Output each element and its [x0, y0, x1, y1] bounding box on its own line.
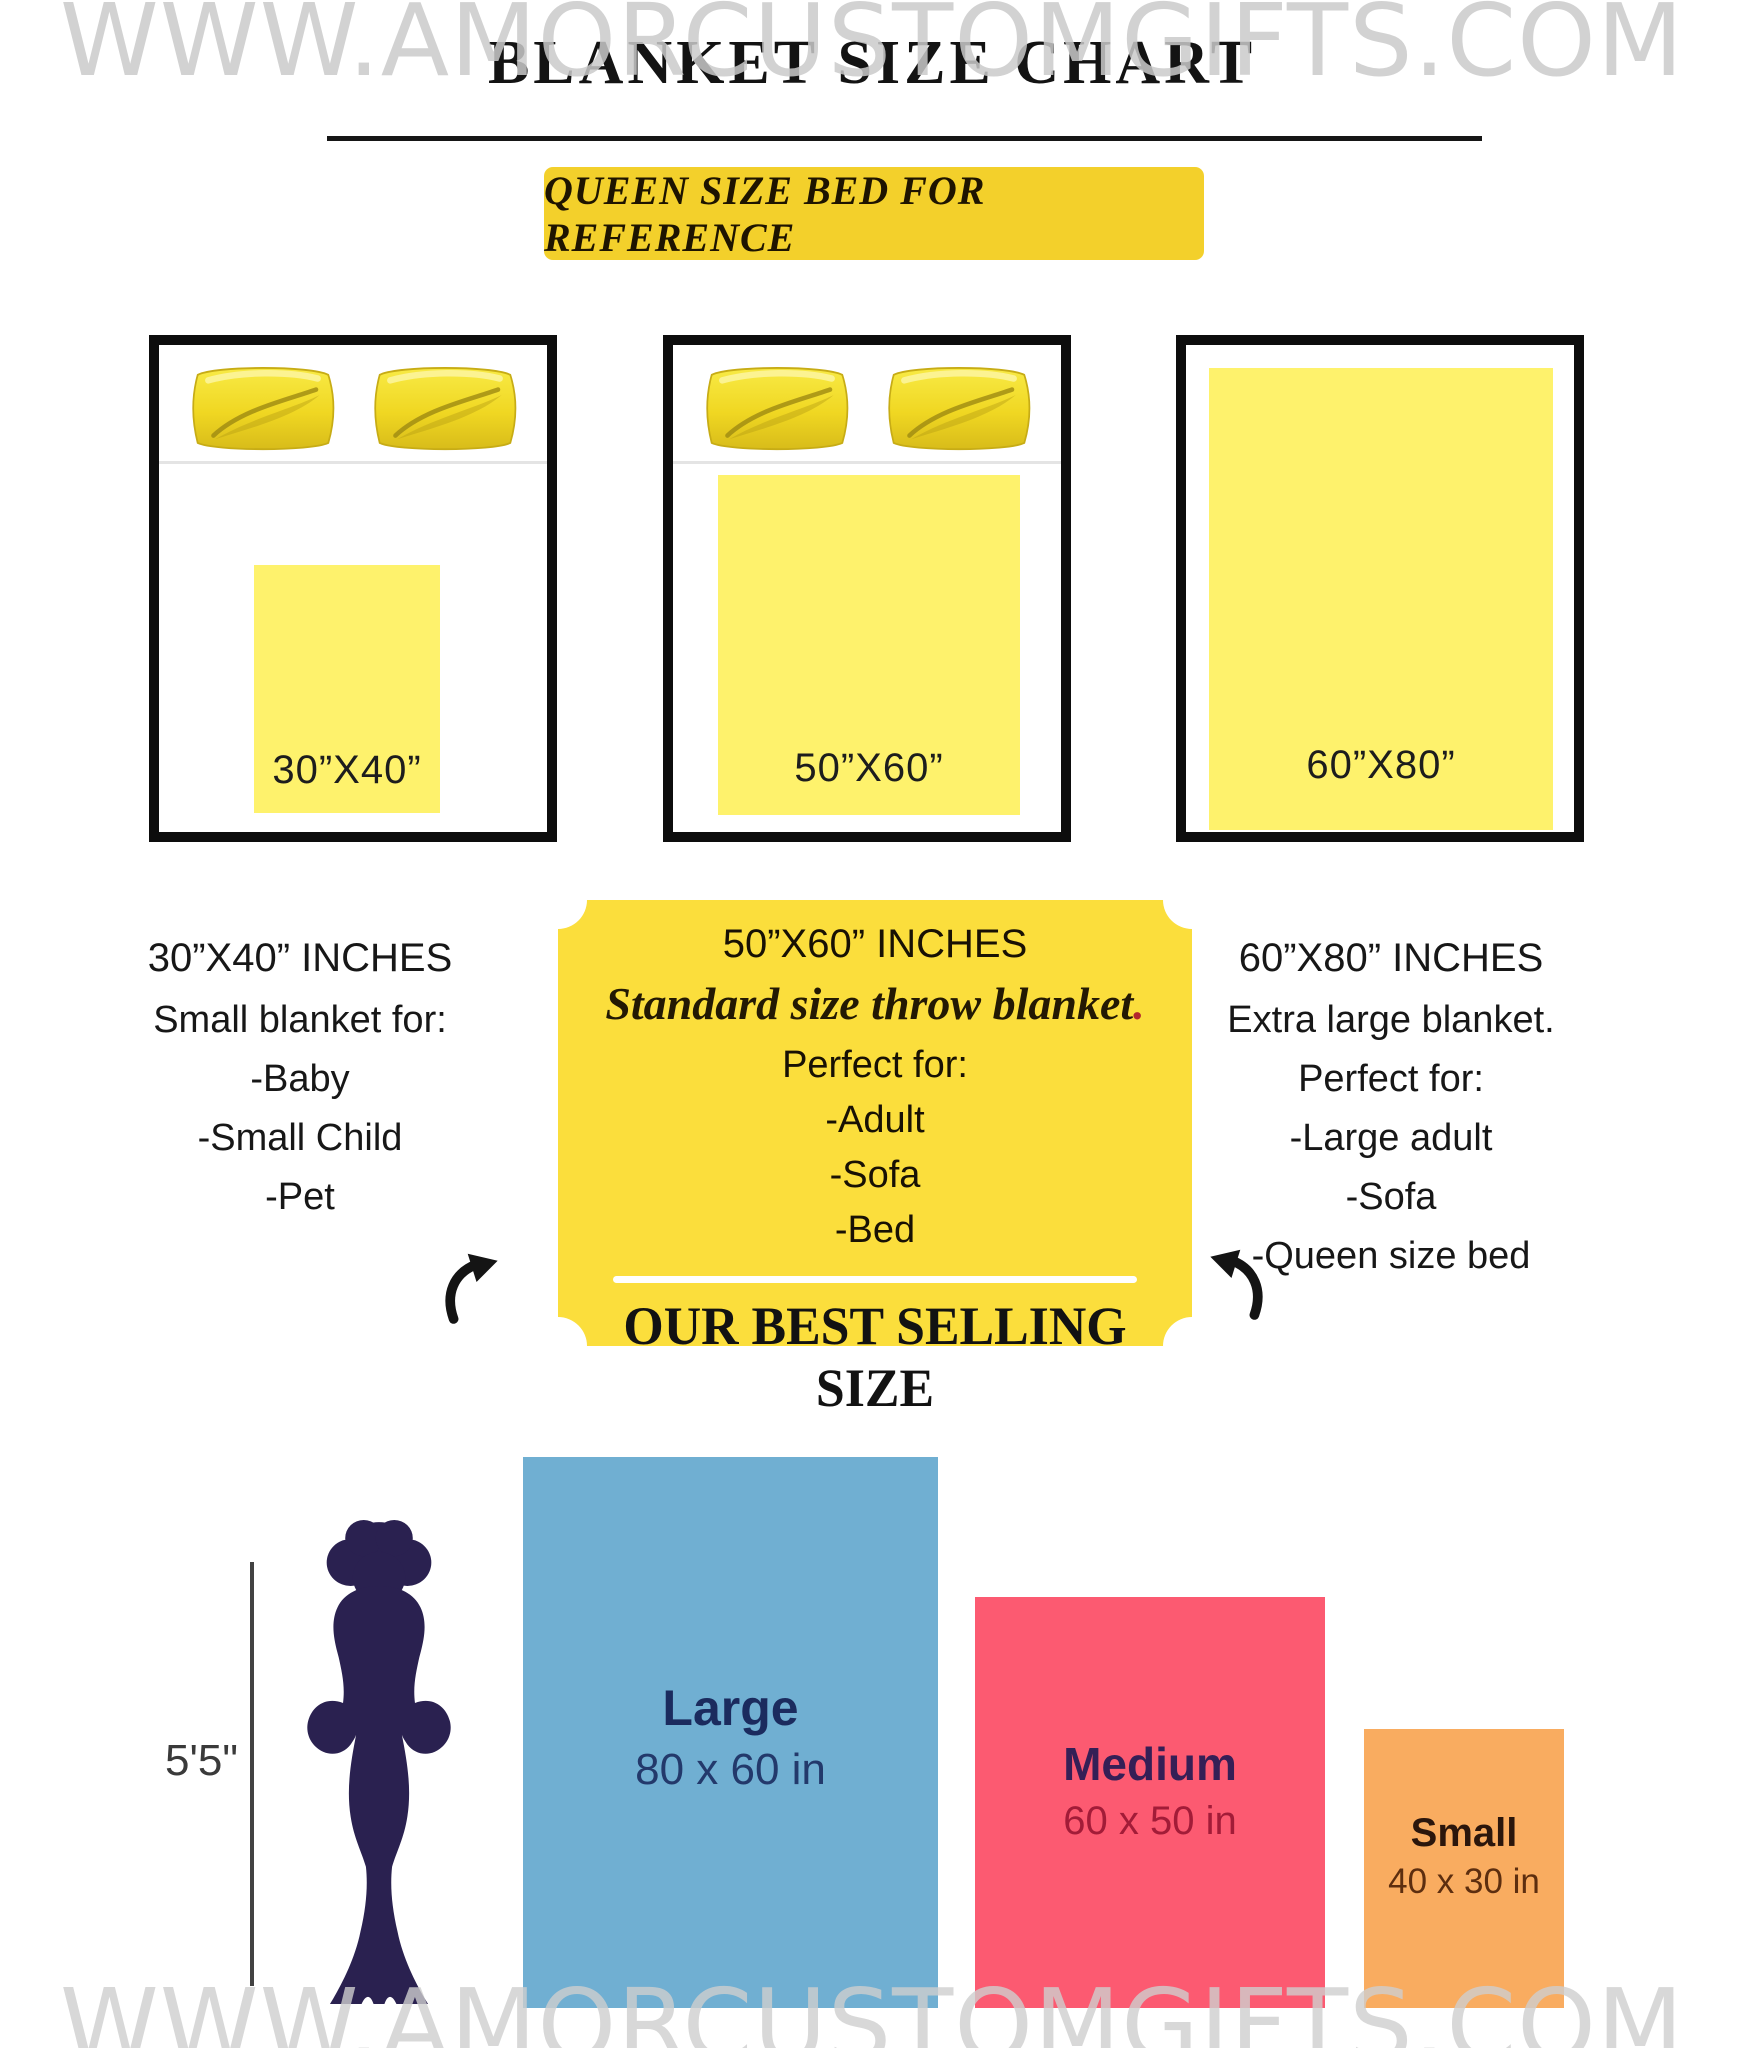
size-line: Perfect for:	[558, 1044, 1192, 1087]
size-line: -Baby	[110, 1058, 490, 1101]
size-line: Small blanket for:	[110, 999, 490, 1042]
size-line: -Sofa	[558, 1154, 1192, 1197]
blanket-size-label: 60”X80”	[1306, 743, 1455, 830]
pillow-icon	[885, 362, 1033, 454]
person-silhouette-icon	[270, 1520, 488, 2004]
size-line: -Bed	[558, 1209, 1192, 1252]
pillow-icon	[703, 362, 851, 454]
comparison-rect-small: Small 40 x 30 in	[1364, 1729, 1564, 2008]
pillow-icon	[189, 362, 337, 454]
blanket-50x60: 50”X60”	[718, 475, 1020, 815]
bed-diagram-60x80: 60”X80”	[1176, 335, 1584, 842]
best-selling-size-card: 50”X60” INCHES Standard size throw blank…	[558, 900, 1192, 1346]
size-description-60x80: 60”X80” INCHES Extra large blanket. Perf…	[1196, 936, 1586, 1294]
size-name: Large	[523, 1679, 938, 1737]
size-line: -Sofa	[1196, 1176, 1586, 1219]
height-reference-line	[250, 1562, 254, 1986]
height-label: 5'5"	[118, 1736, 238, 1786]
best-selling-label: OUR BEST SELLING SIZE	[571, 1295, 1180, 1419]
size-name: Medium	[975, 1737, 1325, 1791]
page-title: BLANKET SIZE CHART	[0, 28, 1744, 99]
size-line: -Large adult	[1196, 1117, 1586, 1160]
bed-sheet-line	[673, 461, 1061, 464]
blanket-size-label: 30”X40”	[272, 748, 421, 813]
subtitle-period: .	[1133, 978, 1145, 1029]
size-title: 30”X40” INCHES	[110, 936, 490, 981]
pillow-icon	[371, 362, 519, 454]
curved-arrow-left-icon	[440, 1252, 506, 1326]
comparison-rect-medium: Medium 60 x 50 in	[975, 1597, 1325, 2008]
size-line: -Small Child	[110, 1117, 490, 1160]
size-description-30x40: 30”X40” INCHES Small blanket for: -Baby …	[110, 936, 490, 1235]
blanket-30x40: 30”X40”	[254, 565, 440, 813]
size-name: Small	[1364, 1811, 1564, 1856]
bed-diagram-30x40: 30”X40”	[149, 335, 557, 842]
title-underline	[327, 136, 1482, 141]
size-line: Perfect for:	[1196, 1058, 1586, 1101]
bed-sheet-line	[159, 461, 547, 464]
size-dimensions: 80 x 60 in	[523, 1745, 938, 1795]
size-line: -Pet	[110, 1176, 490, 1219]
size-title: 60”X80” INCHES	[1196, 936, 1586, 981]
card-divider	[613, 1276, 1137, 1283]
reference-banner-label: QUEEN SIZE BED FOR REFERENCE	[544, 167, 1204, 261]
size-dimensions: 60 x 50 in	[975, 1799, 1325, 1844]
card-corner-notch	[1163, 871, 1221, 929]
size-title: 50”X60” INCHES	[558, 900, 1192, 967]
card-corner-notch	[529, 871, 587, 929]
size-line: -Adult	[558, 1099, 1192, 1142]
card-subtitle: Standard size throw blanket.	[558, 977, 1192, 1030]
blanket-size-chart-page: WWW.AMORCUSTOMGIFTS.COM WWW.AMORCUSTOMGI…	[0, 0, 1744, 2048]
reference-banner: QUEEN SIZE BED FOR REFERENCE	[544, 167, 1204, 260]
comparison-rect-large: Large 80 x 60 in	[523, 1457, 938, 2008]
comparison-label: Large 80 x 60 in	[523, 1679, 938, 1795]
curved-arrow-right-icon	[1202, 1248, 1268, 1322]
comparison-label: Small 40 x 30 in	[1364, 1811, 1564, 1902]
size-dimensions: 40 x 30 in	[1364, 1862, 1564, 1902]
comparison-label: Medium 60 x 50 in	[975, 1737, 1325, 1844]
blanket-size-label: 50”X60”	[794, 746, 943, 815]
blanket-60x80: 60”X80”	[1209, 368, 1553, 830]
size-line: Extra large blanket.	[1196, 999, 1586, 1042]
bed-diagram-50x60: 50”X60”	[663, 335, 1071, 842]
